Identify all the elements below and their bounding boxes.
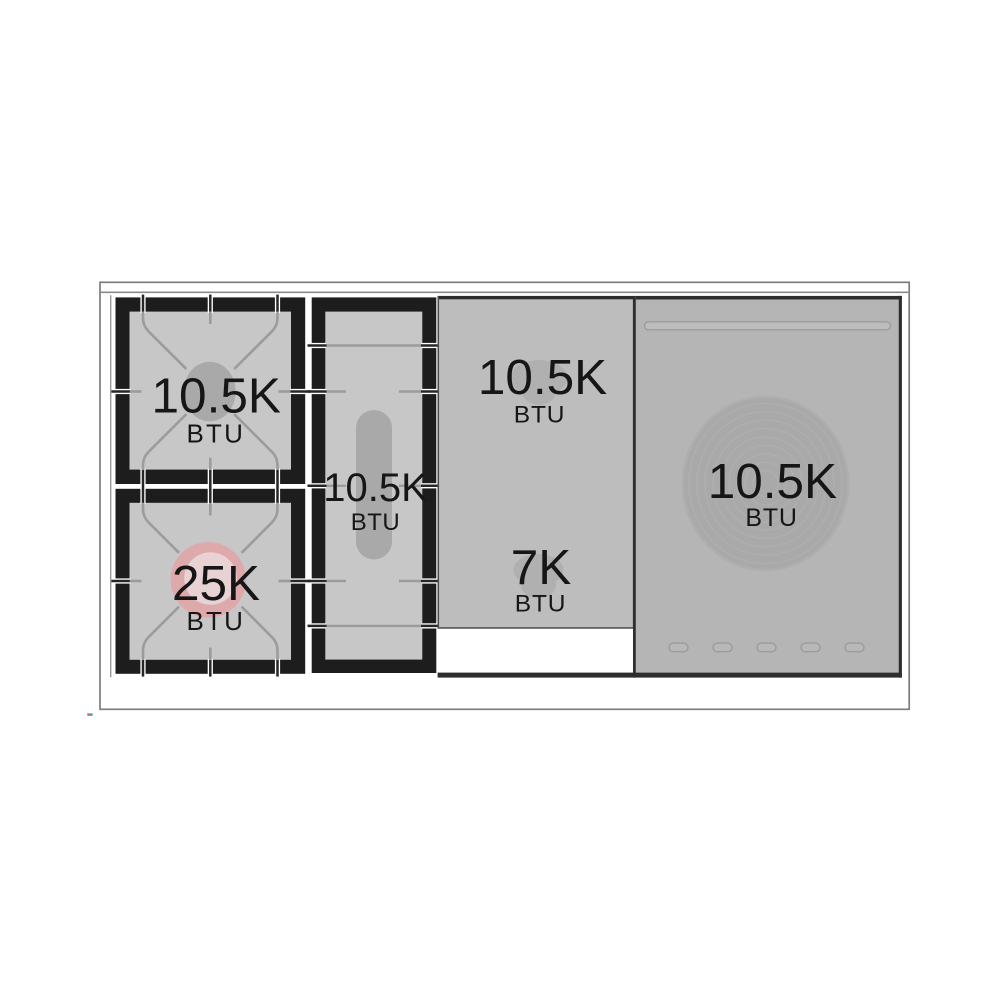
svg-text:BTU: BTU <box>186 606 245 636</box>
svg-text:7K: 7K <box>511 540 572 595</box>
svg-text:10.5K: 10.5K <box>323 466 428 510</box>
svg-text:10.5K: 10.5K <box>708 454 837 509</box>
svg-text:BTU: BTU <box>351 509 401 536</box>
svg-text:BTU: BTU <box>186 418 245 448</box>
svg-text:BTU: BTU <box>514 402 565 429</box>
svg-text:BTU: BTU <box>515 590 566 617</box>
svg-text:10.5K: 10.5K <box>152 368 281 423</box>
svg-text:10.5K: 10.5K <box>478 350 607 405</box>
svg-text:25K: 25K <box>172 556 260 611</box>
svg-text:BTU: BTU <box>745 504 797 532</box>
